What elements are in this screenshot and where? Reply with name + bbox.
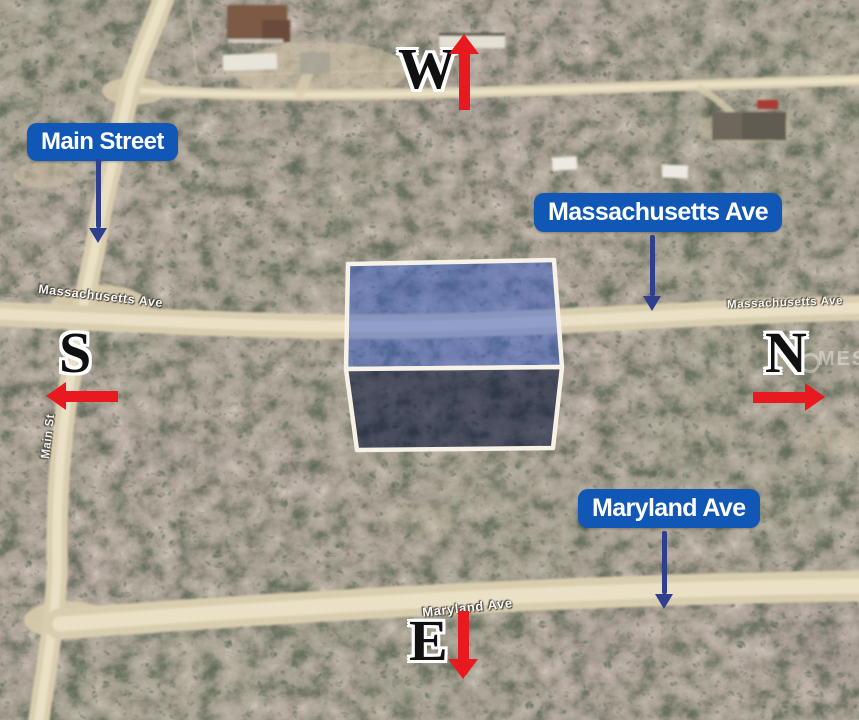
pointer-arrow-maryland-ave [654, 531, 674, 609]
arrow-head [805, 383, 825, 411]
arrow-head [89, 228, 107, 243]
watermark-text: MES [818, 348, 859, 371]
parcel-front-face [346, 367, 562, 450]
house-wing [262, 20, 290, 42]
compass-letter-south: S [59, 324, 91, 382]
white-trailer [223, 53, 278, 71]
arrow-head [46, 382, 66, 410]
pointer-arrow-massachusetts-ave [642, 235, 662, 311]
compass-arrow-east [448, 611, 478, 679]
annotated-aerial-map: Massachusetts Ave Massachusetts Ave Mary… [0, 0, 859, 720]
label-main-street: Main Street [27, 123, 178, 161]
red-vehicle [757, 100, 778, 109]
house-porch [228, 39, 283, 43]
compass-letter-north: N [765, 324, 807, 382]
label-massachusetts-ave: Massachusetts Ave [534, 193, 782, 232]
arrow-shaft [458, 611, 469, 659]
arrow-shaft [753, 392, 805, 403]
arrow-shaft [662, 531, 667, 594]
arrow-shaft [459, 54, 470, 110]
highlighted-parcel [346, 260, 562, 450]
label-maryland-ave: Maryland Ave [578, 489, 760, 528]
compass-letter-west: W [398, 40, 456, 98]
compass-arrow-north [753, 383, 825, 411]
arrow-head [448, 659, 478, 679]
arrow-shaft [650, 235, 655, 296]
gray-shed [300, 52, 330, 74]
compass-letter-east: E [409, 612, 448, 670]
small-shed-1 [552, 156, 578, 170]
arrow-shaft [96, 159, 101, 228]
pointer-arrow-main-street [88, 159, 108, 243]
compass-arrow-south [46, 382, 118, 410]
arrow-head [655, 594, 673, 609]
arrow-shaft [66, 391, 118, 402]
arrow-head [643, 296, 661, 311]
small-shed-2 [662, 165, 688, 179]
dark-building-roof [712, 112, 742, 140]
arrow-head [449, 34, 479, 54]
parcel-top-face [346, 260, 562, 369]
compass-arrow-west [449, 34, 479, 110]
